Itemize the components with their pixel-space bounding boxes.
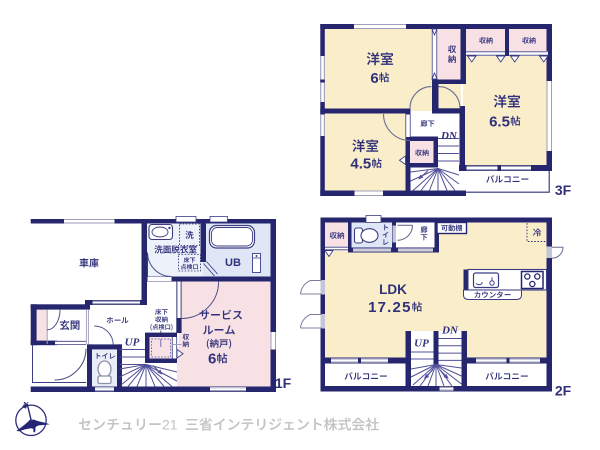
svg-text:DN: DN	[441, 325, 459, 337]
svg-text:6.5: 6.5	[489, 113, 510, 130]
svg-text:21: 21	[162, 417, 178, 433]
svg-text:4.5: 4.5	[350, 156, 371, 173]
svg-text:6: 6	[370, 70, 378, 87]
svg-text:17.25: 17.25	[368, 299, 412, 316]
svg-text:UP: UP	[414, 338, 429, 350]
svg-text:DN: DN	[440, 130, 458, 142]
svg-text:2F: 2F	[555, 383, 572, 399]
svg-text:3F: 3F	[555, 182, 572, 198]
svg-text:LDK: LDK	[379, 282, 407, 297]
svg-text:1F: 1F	[275, 375, 292, 391]
svg-text:6: 6	[208, 351, 216, 368]
svg-text:UP: UP	[125, 337, 140, 349]
svg-text:UB: UB	[225, 257, 241, 269]
